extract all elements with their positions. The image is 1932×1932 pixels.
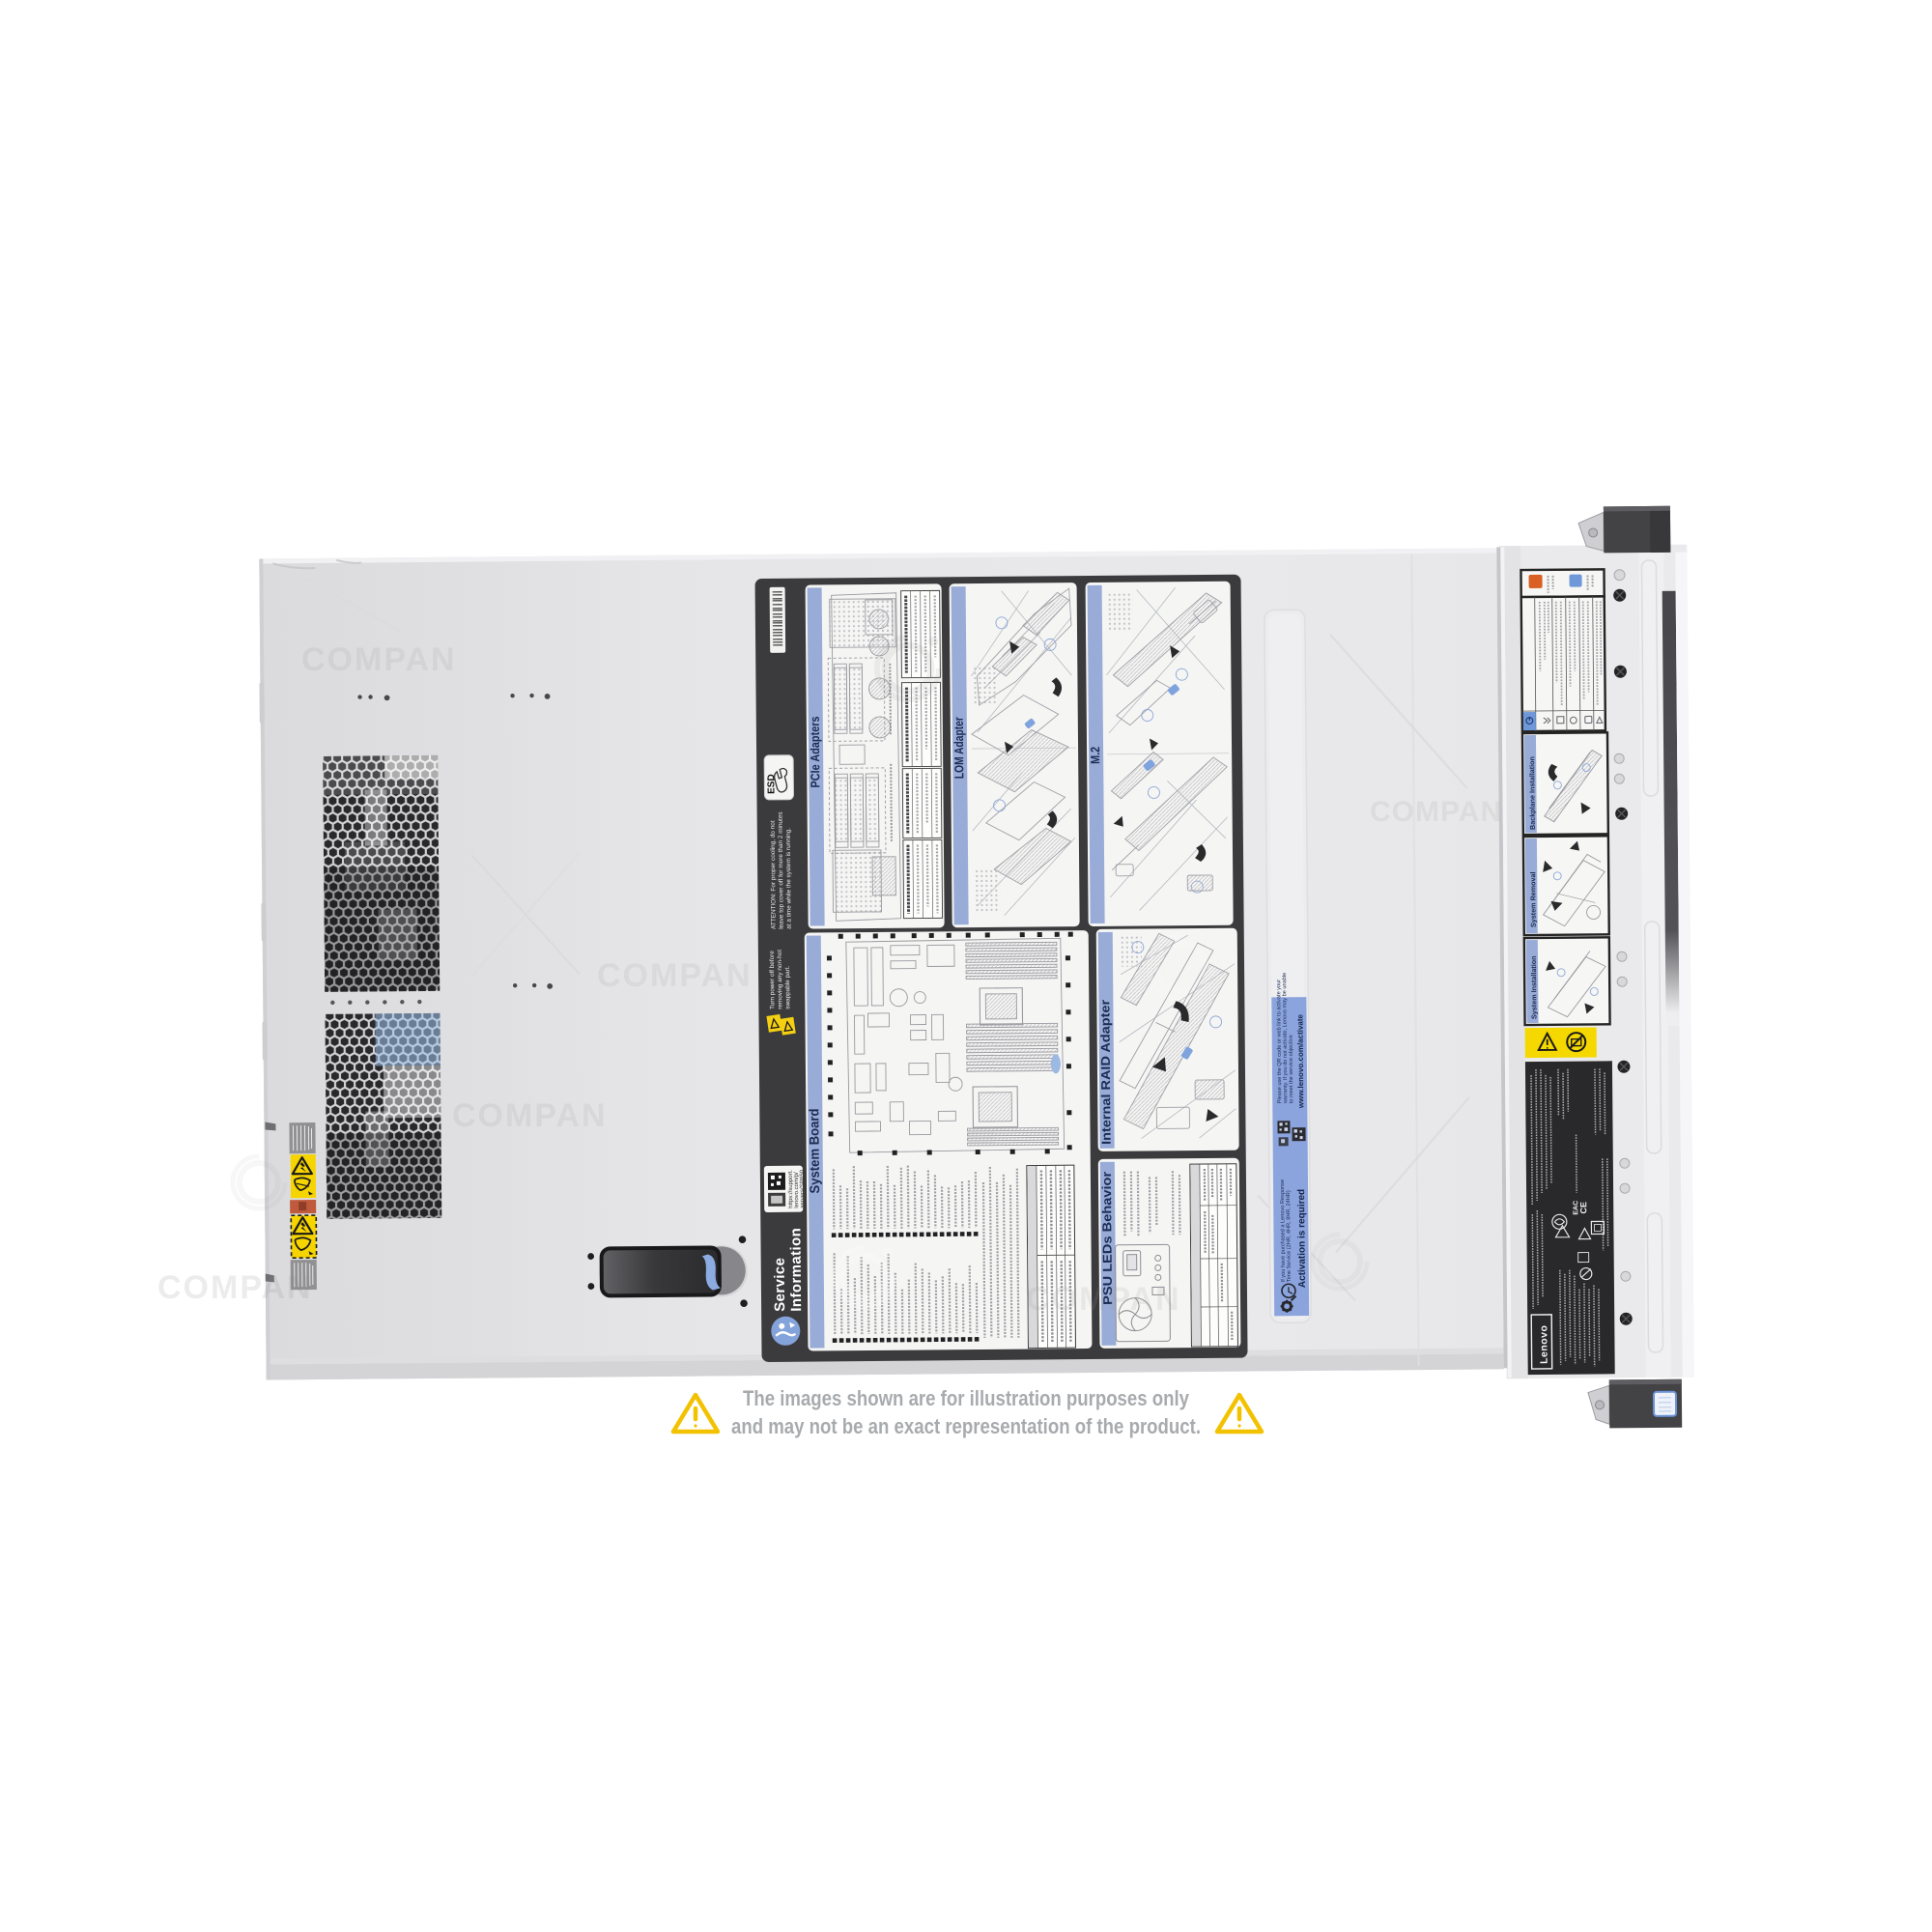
svg-text:The images shown are for illus: The images shown are for illustration pu… xyxy=(743,1386,1190,1410)
svg-text:swappable part.: swappable part. xyxy=(784,965,791,1009)
svg-text:M.2: M.2 xyxy=(1088,747,1102,764)
svg-text:Lenovo: Lenovo xyxy=(1538,1325,1549,1364)
svg-text:www.lenovo.com/activate: www.lenovo.com/activate xyxy=(1295,1013,1305,1109)
svg-text:Information: Information xyxy=(787,1228,805,1312)
svg-text:Activation is required: Activation is required xyxy=(1296,1189,1308,1288)
svg-text:and may not be an exact repres: and may not be an exact representation o… xyxy=(731,1414,1201,1438)
svg-text:COMPAN: COMPAN xyxy=(597,957,753,994)
svg-text:removing any non-hot: removing any non-hot xyxy=(777,950,784,1009)
svg-text:PCIe Adapters: PCIe Adapters xyxy=(808,716,823,787)
svg-text:System Removal: System Removal xyxy=(1528,871,1538,927)
svg-text:leave top cover off for more t: leave top cover off for more than 2 minu… xyxy=(778,811,785,928)
svg-text:Service: Service xyxy=(772,1258,788,1312)
svg-text:System Board: System Board xyxy=(806,1108,822,1193)
svg-text:at a time while the system is: at a time while the system is running. xyxy=(785,828,793,929)
svg-text:Internal RAID Adapter: Internal RAID Adapter xyxy=(1097,1000,1113,1145)
svg-text:Turn power off before: Turn power off before xyxy=(769,951,777,1009)
svg-text:COMPAN: COMPAN xyxy=(1370,796,1502,828)
svg-text:CE: CE xyxy=(1578,1202,1588,1214)
svg-text:servers/SR650: servers/SR650 xyxy=(800,1169,806,1207)
svg-text:COMPAN: COMPAN xyxy=(301,641,457,678)
svg-text:EAC: EAC xyxy=(1573,1201,1579,1215)
svg-text:Backplane Installation: Backplane Installation xyxy=(1527,756,1537,830)
svg-text:COMPAN: COMPAN xyxy=(452,1097,608,1134)
svg-text:LOM Adapter: LOM Adapter xyxy=(952,717,967,779)
svg-text:COMPAN: COMPAN xyxy=(1026,1281,1181,1318)
svg-text:ATTENTION: For proper cooling: ATTENTION: For proper cooling, do not xyxy=(770,820,778,929)
svg-text:to meet the service objective: to meet the service objective xyxy=(1289,1035,1295,1103)
svg-text:Time Service (2HR, 4HR, 8HR, 2: Time Service (2HR, 4HR, 8HR, 24HR) xyxy=(1286,1190,1293,1282)
svg-text:COMPAN: COMPAN xyxy=(157,1269,313,1306)
svg-text:System Installation: System Installation xyxy=(1529,955,1539,1019)
